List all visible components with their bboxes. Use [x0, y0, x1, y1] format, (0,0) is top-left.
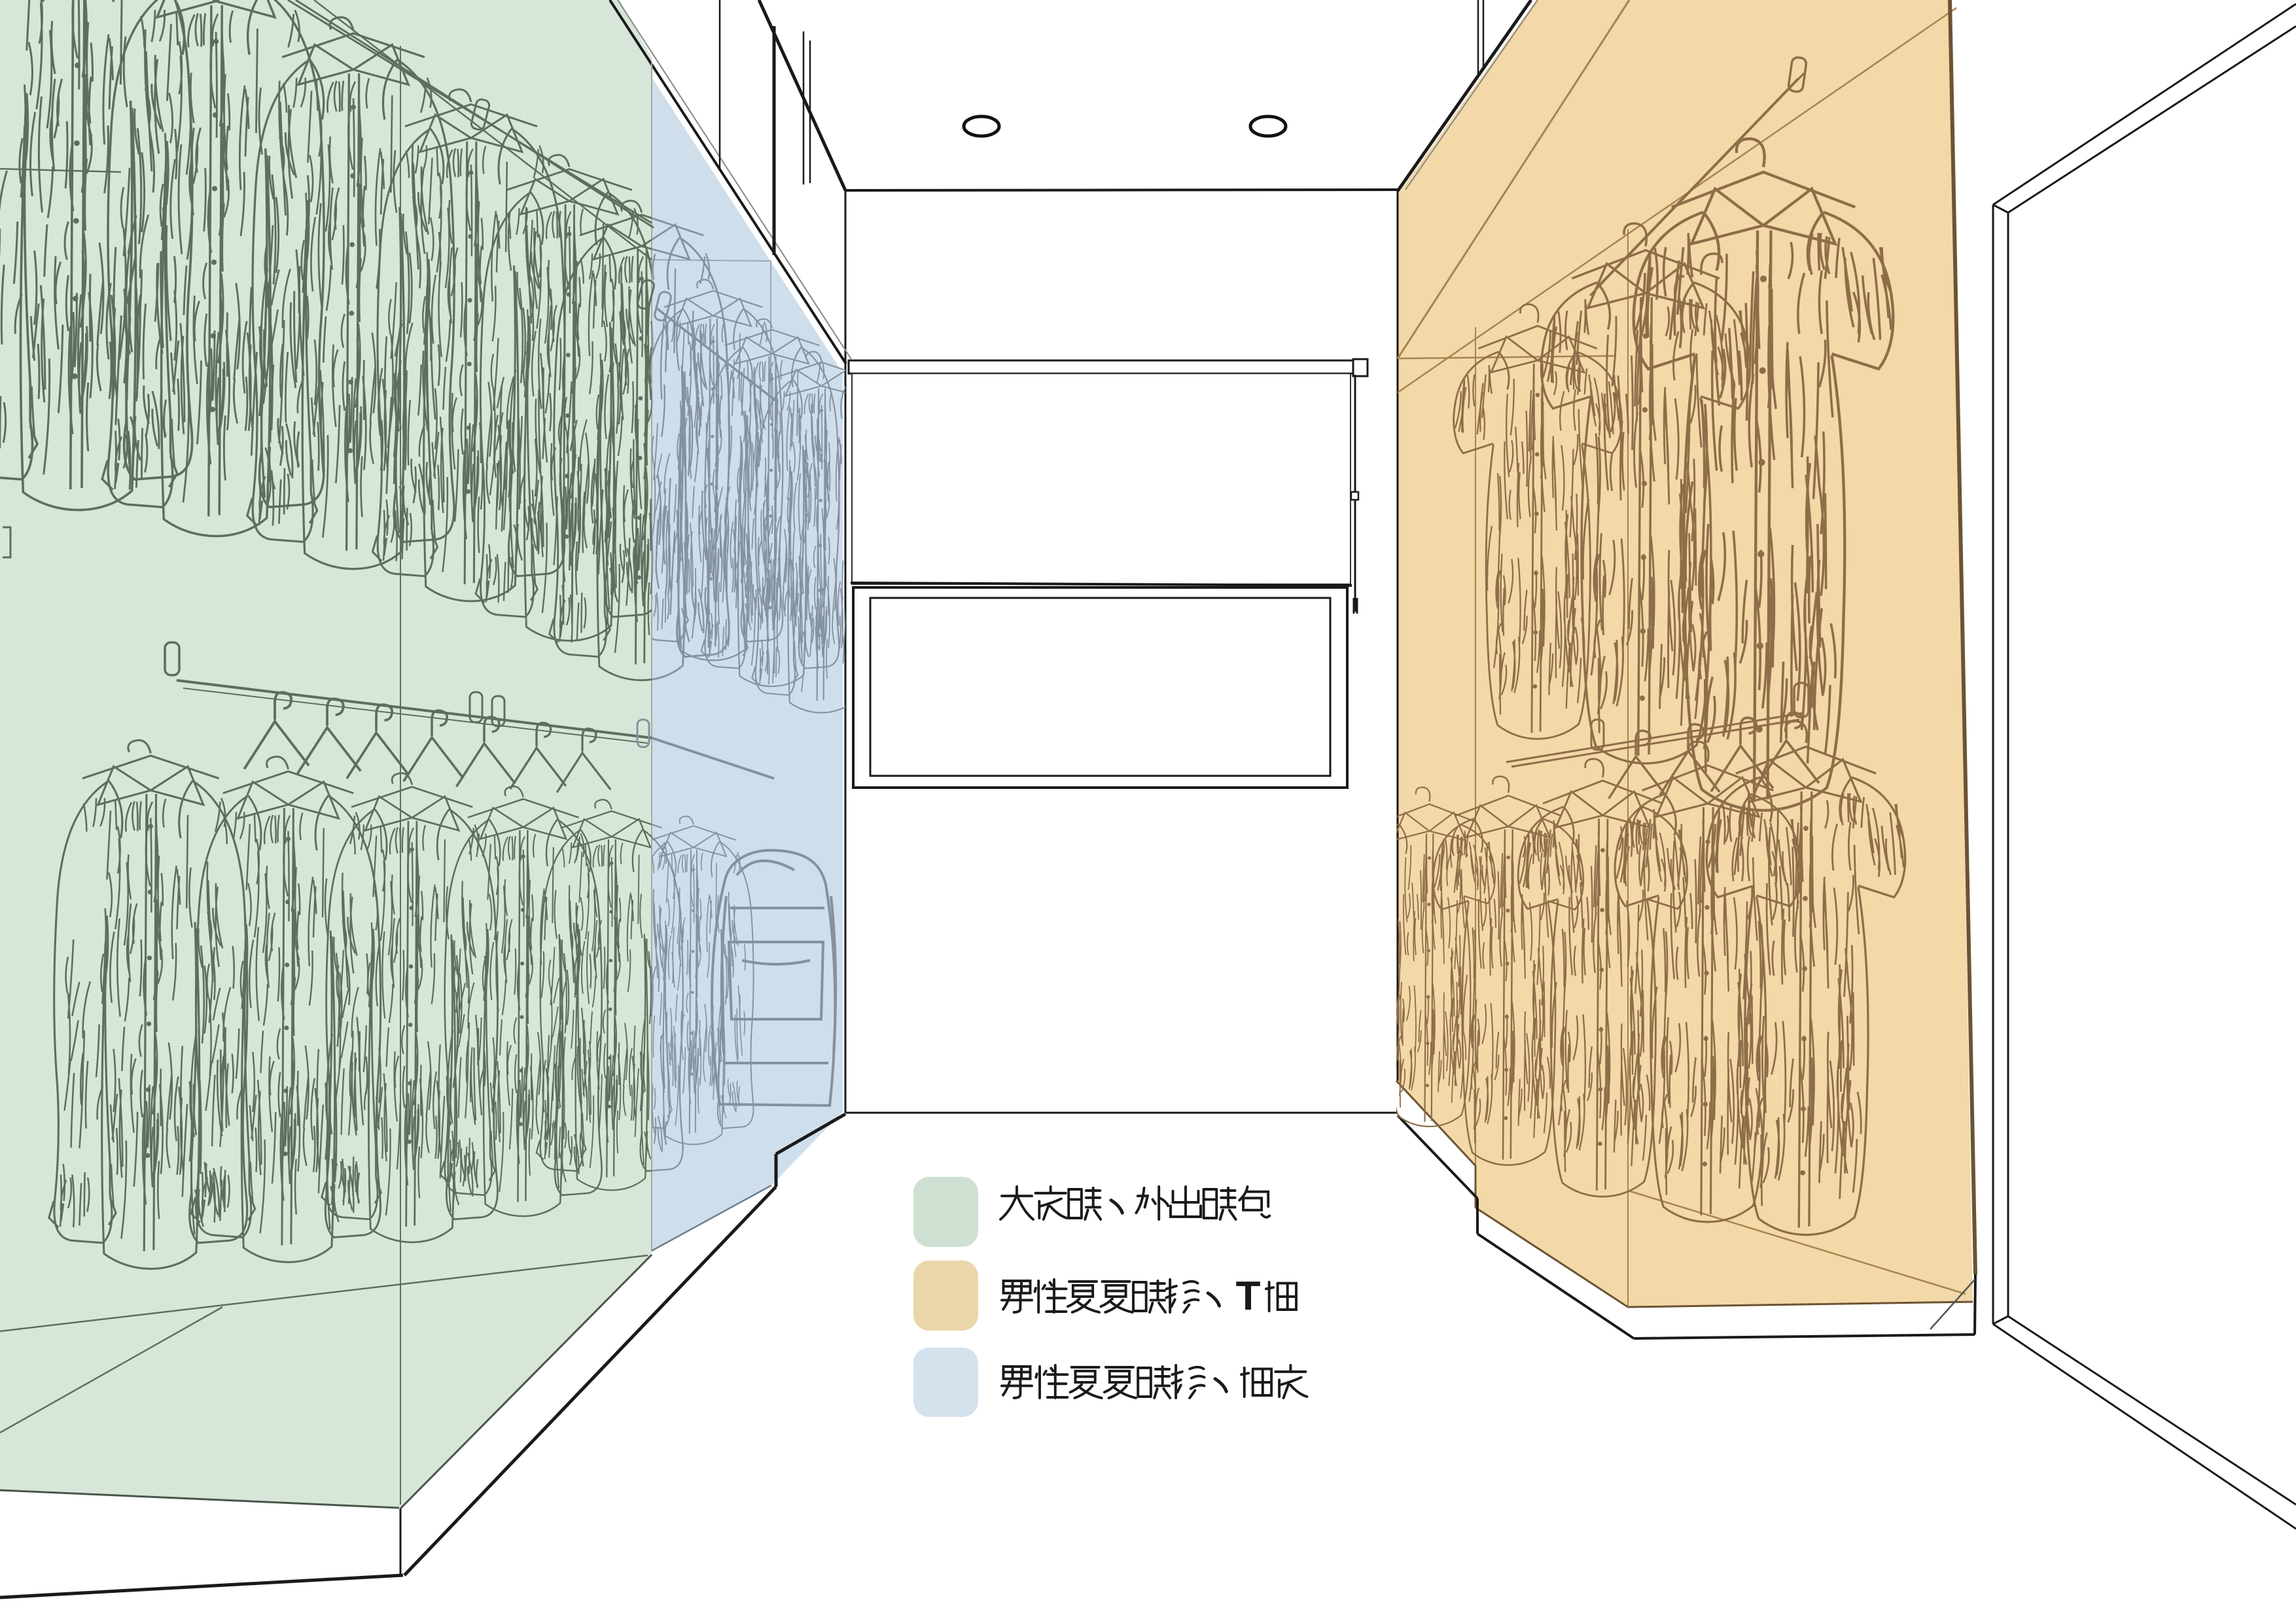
svg-text:T: T: [1236, 1274, 1261, 1319]
